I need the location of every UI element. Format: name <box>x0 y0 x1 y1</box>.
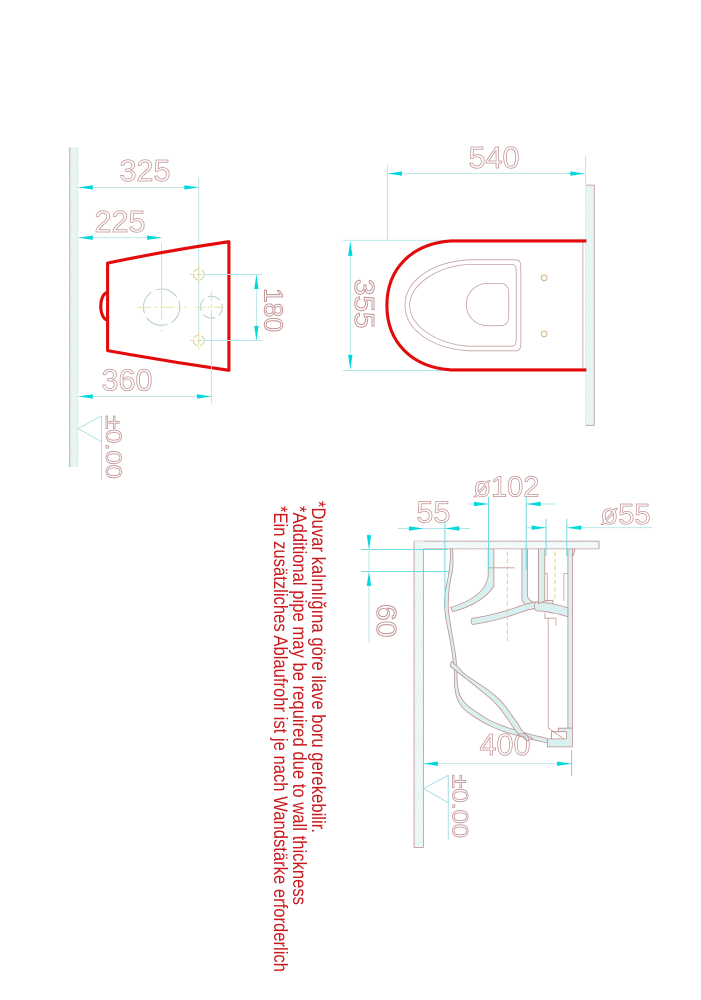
svg-text:ø102: ø102 <box>473 472 539 504</box>
svg-text:*Ein zusätzliches Ablaufrohr i: *Ein zusätzliches Ablaufrohr ist je nach… <box>269 506 290 972</box>
svg-text:*Additional pipe may be requir: *Additional pipe may be required due to … <box>288 506 309 905</box>
svg-text:180: 180 <box>259 288 289 332</box>
svg-text:ø55: ø55 <box>601 499 651 531</box>
svg-text:60: 60 <box>371 604 402 638</box>
svg-text:355: 355 <box>349 279 380 329</box>
svg-text:540: 540 <box>469 141 520 175</box>
svg-text:360: 360 <box>102 364 153 398</box>
svg-text:±0.00: ±0.00 <box>101 415 126 479</box>
svg-text:400: 400 <box>480 728 531 762</box>
svg-text:325: 325 <box>120 154 171 188</box>
svg-text:225: 225 <box>95 205 146 239</box>
svg-text:±0.00: ±0.00 <box>448 775 473 839</box>
svg-text:*Duvar kalınlığına göre ilave: *Duvar kalınlığına göre ilave boru gerek… <box>307 501 328 833</box>
